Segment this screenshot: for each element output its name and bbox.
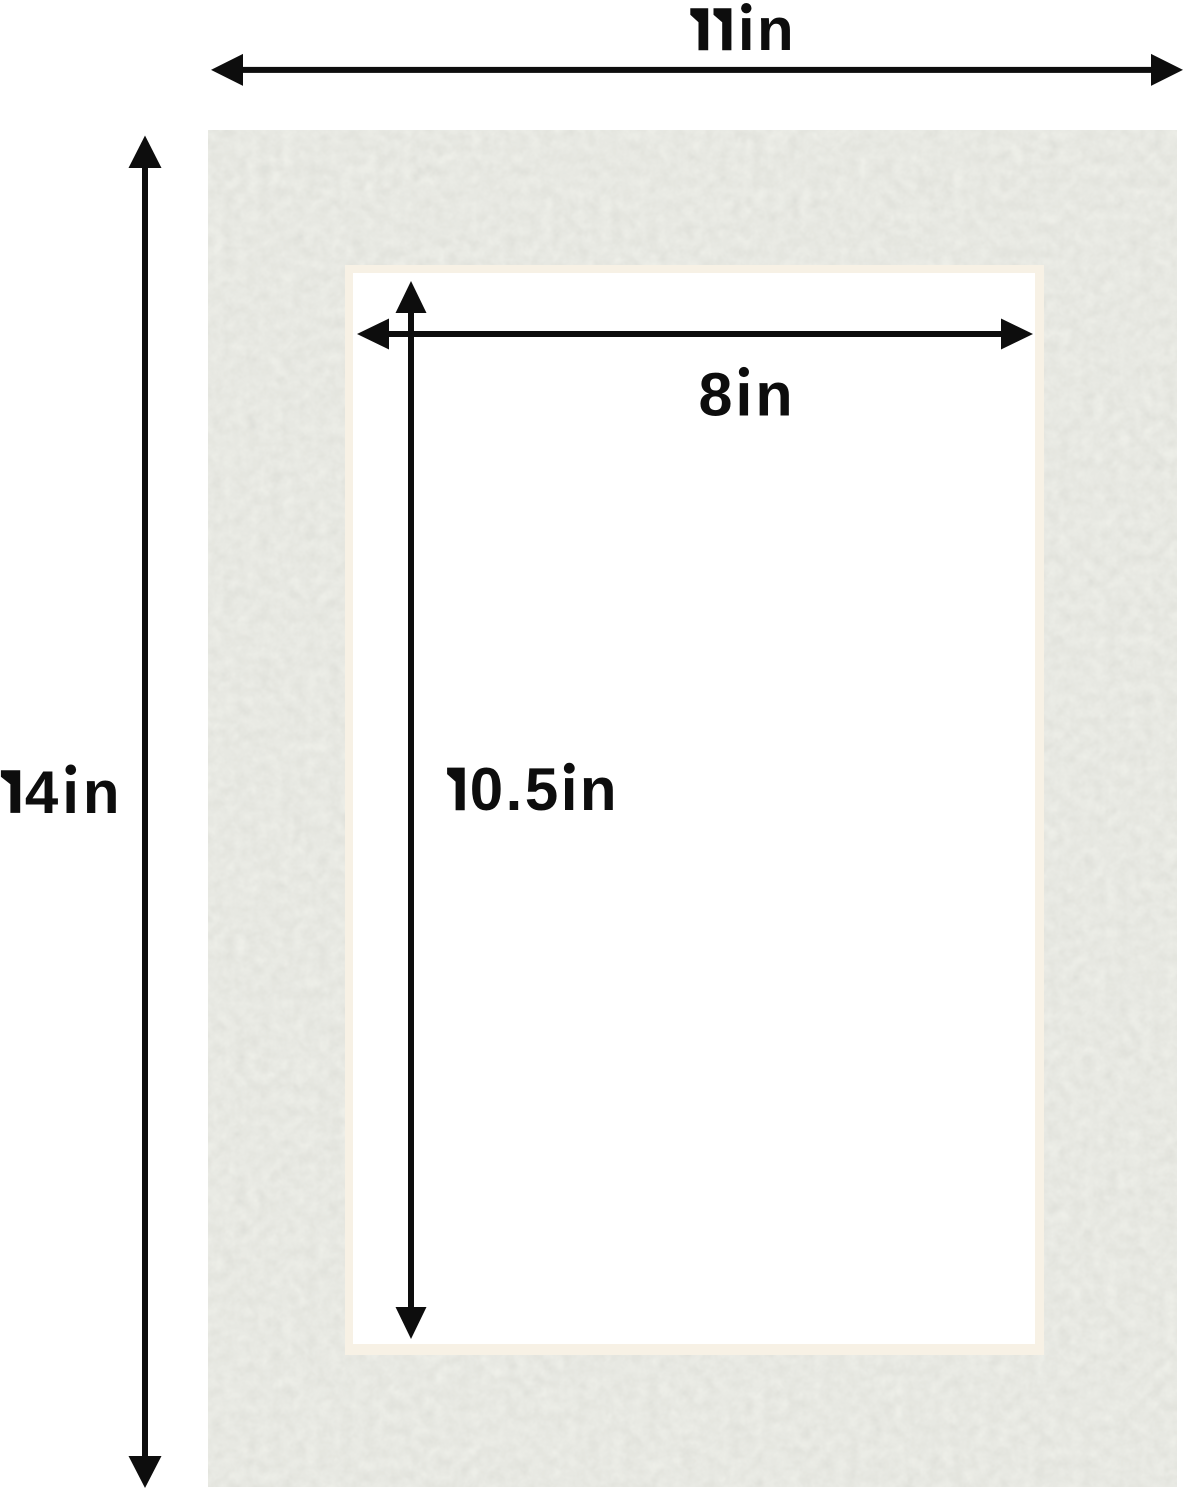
svg-text:0.5ın: 0.5ın (470, 756, 619, 823)
